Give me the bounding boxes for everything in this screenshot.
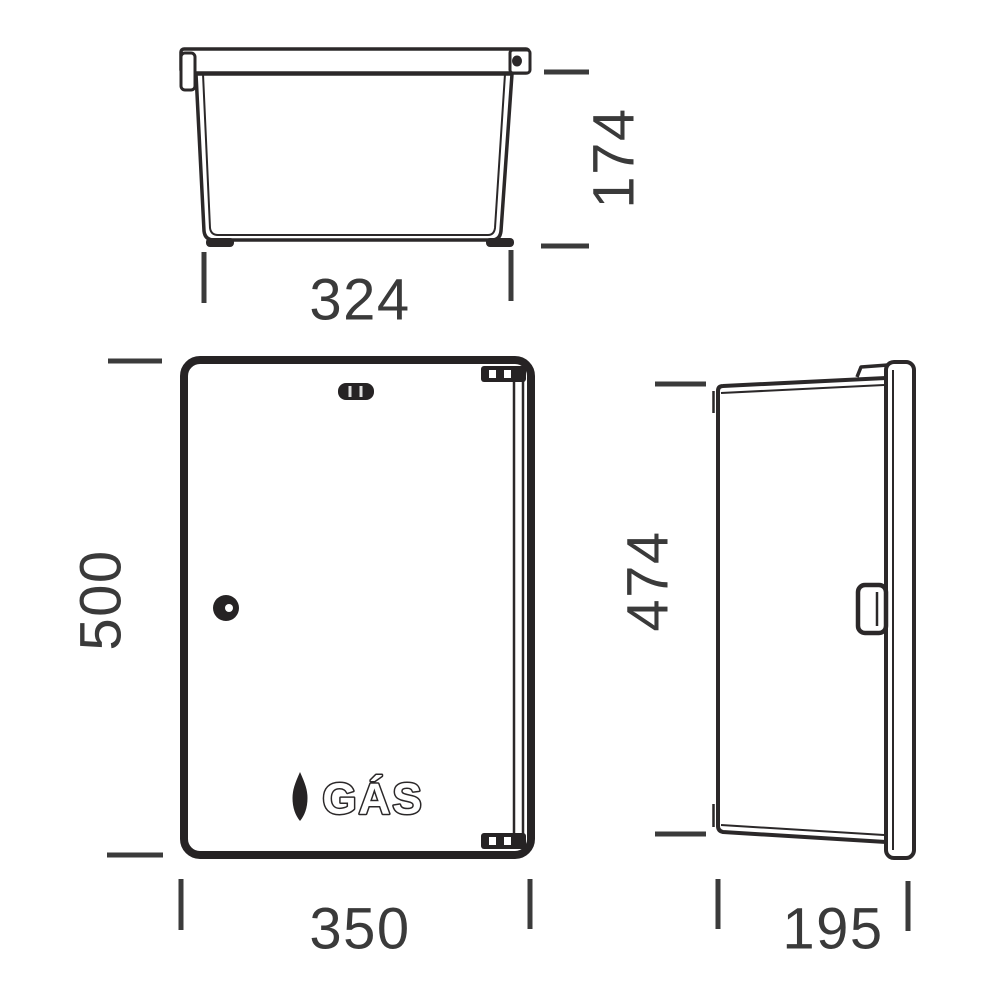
dim-front-height: 500: [69, 361, 164, 855]
side-view-door-panel: [886, 362, 914, 858]
vent-slot: [338, 383, 374, 400]
side-view-door-top-step: [857, 365, 888, 377]
dim-front-width-label: 350: [309, 897, 410, 962]
top-view-lid-lock-dot: [512, 56, 522, 67]
hinge-pin: [504, 370, 511, 378]
hinge-pin: [489, 370, 496, 378]
lock-keyhole: [225, 604, 233, 612]
vent-slot-gap: [349, 386, 352, 397]
drawing-svg: 324 174: [0, 0, 1000, 1000]
top-view: [181, 49, 530, 247]
dim-top-width-label: 324: [309, 268, 410, 333]
dim-side-width-label: 195: [782, 897, 883, 962]
lock-icon: [213, 595, 239, 621]
hinge-pin: [489, 837, 496, 845]
dim-side-height: 474: [616, 384, 707, 834]
hinge-top-icon: [481, 366, 526, 382]
technical-drawing-canvas: 324 174: [0, 0, 1000, 1000]
side-view: [714, 362, 915, 858]
handle-body: [858, 585, 886, 633]
dim-front-width: 350: [181, 879, 530, 962]
top-view-lid: [181, 49, 529, 73]
dim-top-height-label: 174: [582, 107, 647, 208]
top-view-lid-left-tab: [181, 53, 195, 90]
dim-top-width: 324: [204, 250, 511, 333]
hinge-body: [481, 366, 526, 382]
hinge-body: [481, 833, 526, 849]
top-view-foot-left: [206, 238, 234, 247]
dim-side-height-label: 474: [616, 530, 681, 631]
hinge-bottom-icon: [481, 833, 526, 849]
dim-side-width: 195: [718, 879, 908, 962]
vent-slot-gap: [360, 386, 363, 397]
top-view-foot-right: [486, 238, 514, 247]
dim-top-height: 174: [541, 72, 647, 246]
gas-logo-text: GÁS: [322, 774, 423, 824]
front-view: GÁS: [184, 360, 531, 855]
handle-icon: [858, 585, 886, 633]
hinge-pin: [504, 837, 511, 845]
top-view-body-outline: [196, 74, 512, 240]
vent-slot-icon: [338, 383, 374, 400]
dim-front-height-label: 500: [69, 549, 134, 650]
